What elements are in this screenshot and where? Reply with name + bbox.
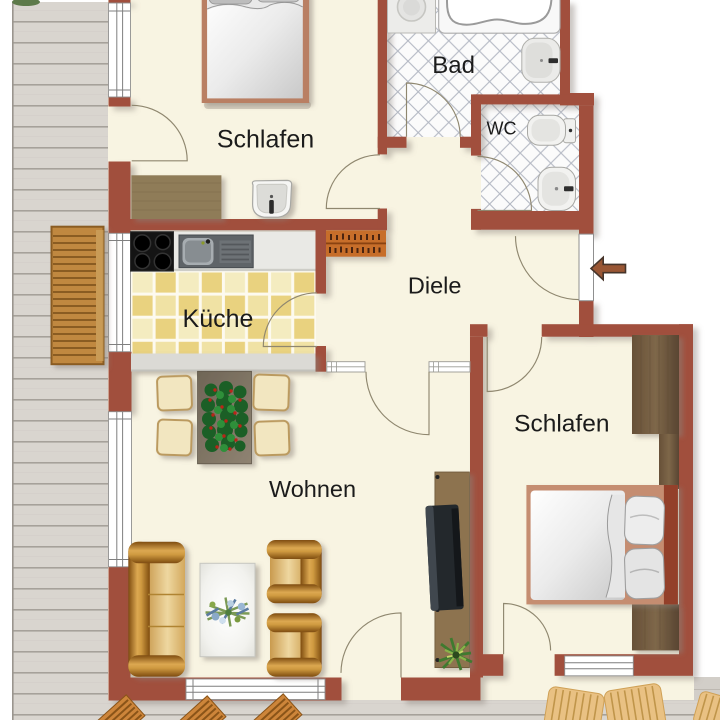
svg-text:Bad: Bad <box>432 52 475 79</box>
svg-text:Schlafen: Schlafen <box>514 411 609 438</box>
svg-text:Wohnen: Wohnen <box>269 476 356 502</box>
svg-text:WC: WC <box>487 118 517 138</box>
svg-text:Diele: Diele <box>408 272 462 298</box>
svg-text:Küche: Küche <box>183 305 254 333</box>
svg-text:Schlafen: Schlafen <box>217 126 314 154</box>
